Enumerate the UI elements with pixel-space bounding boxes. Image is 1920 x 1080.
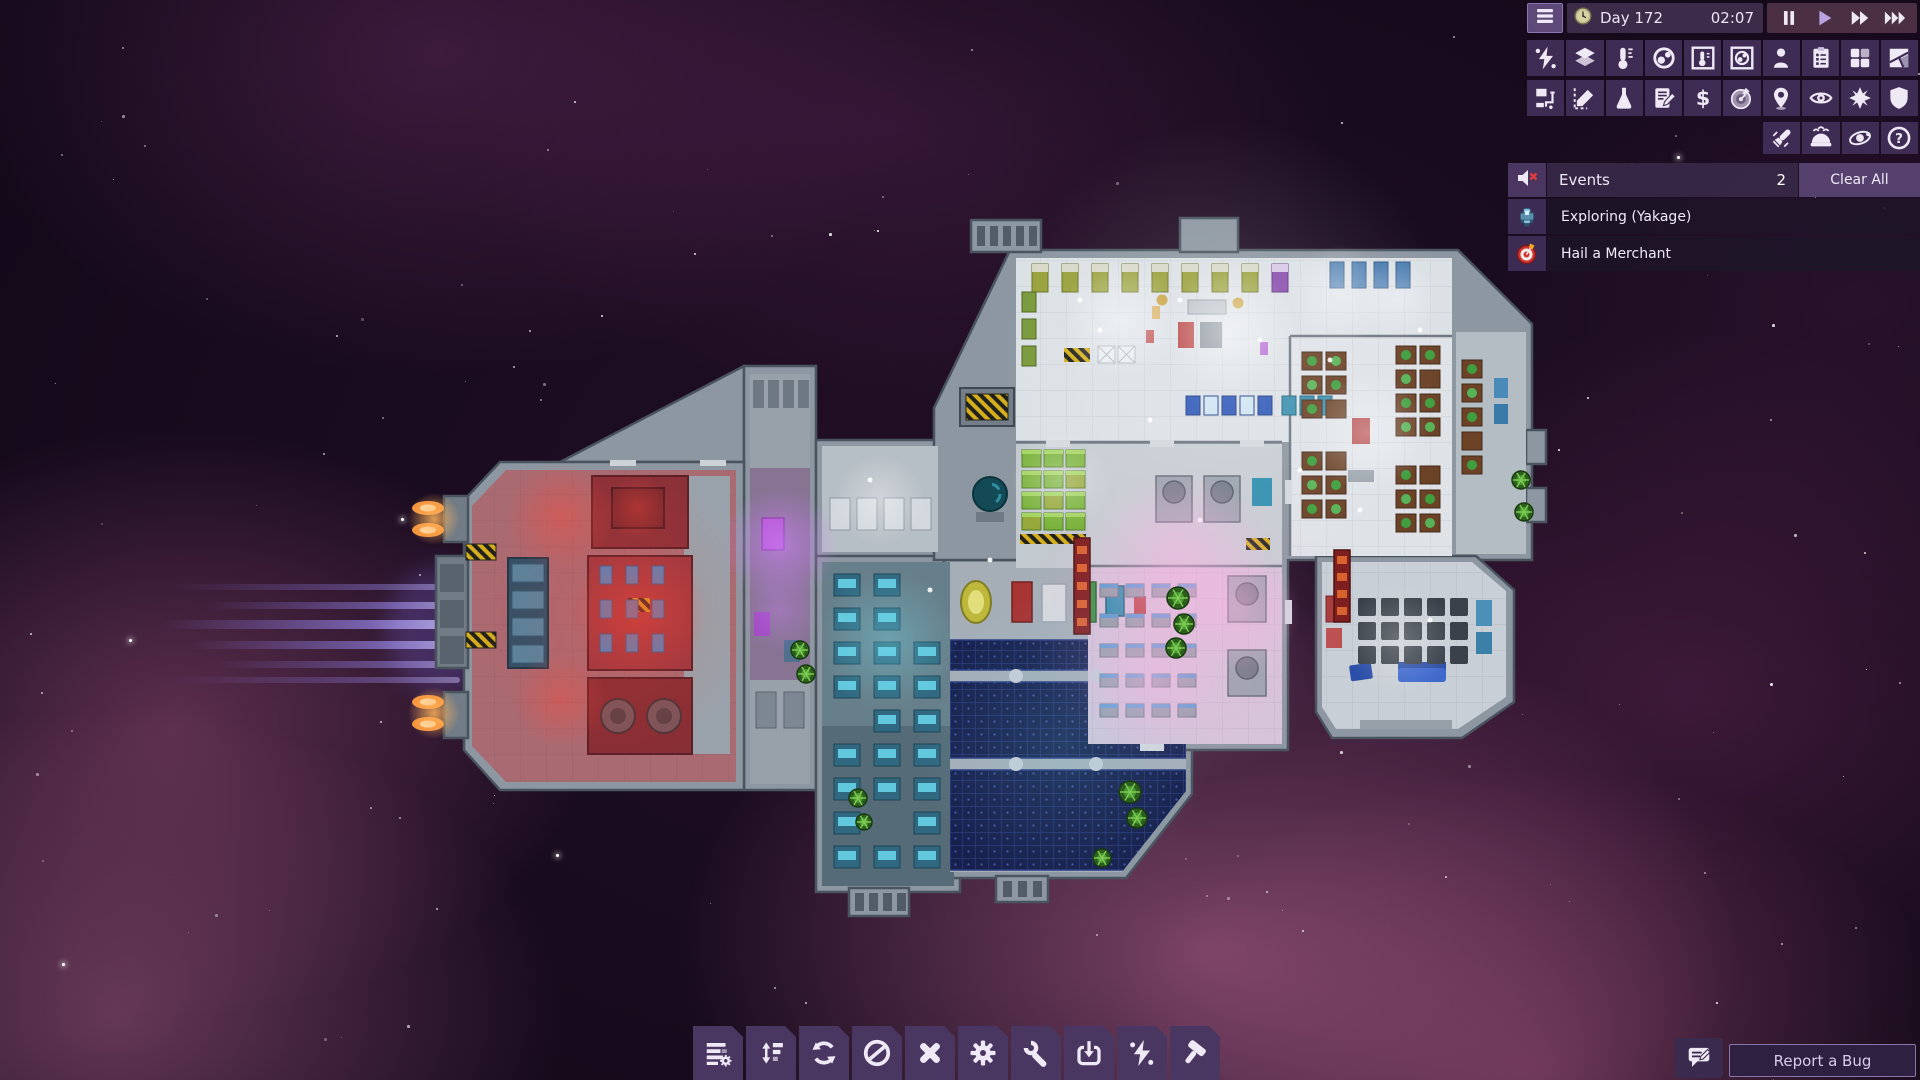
deconstruct-button[interactable] xyxy=(905,1026,955,1080)
gas-detail-overlay-button[interactable] xyxy=(1723,40,1760,76)
operations-button[interactable] xyxy=(958,1026,1008,1080)
playback-controls xyxy=(1767,3,1917,33)
facilities-overlay-button[interactable] xyxy=(1841,40,1878,76)
shield-icon xyxy=(1886,85,1912,111)
zones-icon xyxy=(1572,85,1598,111)
manage-icon xyxy=(703,1038,733,1068)
floors-overlay-button[interactable] xyxy=(1566,40,1603,76)
log-icon xyxy=(1651,85,1677,111)
fff-icon xyxy=(1884,7,1906,29)
crew-overlay-button[interactable] xyxy=(1763,40,1800,76)
log-overlay-button[interactable] xyxy=(1645,80,1682,116)
build-toolbar xyxy=(693,1026,1220,1080)
hull-icon xyxy=(1886,45,1912,71)
clock-icon xyxy=(1573,6,1593,30)
deploy-icon xyxy=(1074,1038,1104,1068)
gas-overlay-button[interactable] xyxy=(1645,40,1682,76)
rotate-icon xyxy=(809,1038,839,1068)
system-view-button[interactable] xyxy=(1842,122,1879,154)
hibernation-button[interactable] xyxy=(1802,122,1839,154)
feedback-icon xyxy=(1686,1043,1712,1073)
help-button[interactable]: ? xyxy=(1881,122,1918,154)
pause-button[interactable] xyxy=(1778,7,1800,29)
power-icon xyxy=(1533,45,1559,71)
trade-icon: $ xyxy=(1690,85,1716,111)
manage-menu-button[interactable] xyxy=(693,1026,743,1080)
deploy-button[interactable] xyxy=(1064,1026,1114,1080)
orbit-icon xyxy=(1847,125,1873,151)
temp-frame-icon xyxy=(1690,45,1716,71)
fastest-forward-button[interactable] xyxy=(1884,7,1906,29)
forbid-icon xyxy=(862,1038,892,1068)
trade-overlay-button[interactable]: $ xyxy=(1684,80,1721,116)
menu-icon xyxy=(1533,4,1557,32)
fast-forward-button[interactable] xyxy=(1849,7,1871,29)
logistics-overlay-button[interactable] xyxy=(1527,80,1564,116)
visibility-icon xyxy=(1808,85,1834,111)
rotate-button[interactable] xyxy=(799,1026,849,1080)
tasks-overlay-button[interactable] xyxy=(1802,40,1839,76)
ff-icon xyxy=(1849,7,1871,29)
mute-events-button[interactable] xyxy=(1508,163,1546,197)
pod-launch-button[interactable] xyxy=(1763,122,1800,154)
pause-icon xyxy=(1778,7,1800,29)
overlay-toolbar-row1 xyxy=(1527,40,1918,76)
repair-icon xyxy=(1021,1038,1051,1068)
event-label: Exploring (Yakage) xyxy=(1547,199,1920,234)
deconstruct-icon xyxy=(915,1038,945,1068)
combat-overlay-button[interactable] xyxy=(1841,80,1878,116)
zones-overlay-button[interactable] xyxy=(1566,80,1603,116)
events-panel: Events 2 Clear All Exploring (Yakage)Hai… xyxy=(1508,163,1920,273)
forbid-button[interactable] xyxy=(852,1026,902,1080)
shields-overlay-button[interactable] xyxy=(1881,80,1918,116)
gear-icon xyxy=(968,1038,998,1068)
research-overlay-button[interactable] xyxy=(1606,80,1643,116)
dome-icon xyxy=(1808,125,1834,151)
time-of-day: 02:07 xyxy=(1711,9,1754,27)
temperature-detail-overlay-button[interactable] xyxy=(1684,40,1721,76)
navigation-icon xyxy=(1768,85,1794,111)
event-ship-icon xyxy=(1508,199,1546,234)
crew-icon xyxy=(1768,45,1794,71)
events-count: 2 xyxy=(1776,171,1786,189)
visibility-overlay-button[interactable] xyxy=(1802,80,1839,116)
power-overlay-button[interactable] xyxy=(1527,40,1564,76)
event-row[interactable]: Hail a Merchant xyxy=(1508,236,1920,271)
rooms-icon xyxy=(1847,45,1873,71)
gas-frame-icon xyxy=(1729,45,1755,71)
event-label: Hail a Merchant xyxy=(1547,236,1920,271)
ship-map[interactable] xyxy=(0,0,1920,1080)
svg-text:?: ? xyxy=(1895,131,1903,147)
build-button[interactable] xyxy=(1170,1026,1220,1080)
power-icon xyxy=(1127,1038,1157,1068)
gas-icon xyxy=(1651,45,1677,71)
logistics-icon xyxy=(1533,85,1559,111)
temperature-overlay-button[interactable] xyxy=(1606,40,1643,76)
priorities-button[interactable] xyxy=(746,1026,796,1080)
events-title: Events xyxy=(1559,171,1610,189)
floors-icon xyxy=(1572,45,1598,71)
events-header: Events 2 xyxy=(1547,163,1798,197)
clock-bar[interactable]: Day 172 02:07 xyxy=(1567,3,1763,33)
overlay-toolbar-row2: $ xyxy=(1527,80,1918,116)
missions-icon xyxy=(1729,85,1755,111)
navigation-overlay-button[interactable] xyxy=(1763,80,1800,116)
research-icon xyxy=(1611,85,1637,111)
event-target-icon xyxy=(1508,236,1546,271)
play-icon xyxy=(1813,7,1835,29)
event-row[interactable]: Exploring (Yakage) xyxy=(1508,199,1920,234)
repair-button[interactable] xyxy=(1011,1026,1061,1080)
feedback-bubble-button[interactable] xyxy=(1675,1038,1723,1078)
main-menu-button[interactable] xyxy=(1527,3,1563,33)
help-icon: ? xyxy=(1886,125,1912,151)
pod-icon xyxy=(1769,125,1795,151)
temperature-icon xyxy=(1611,45,1637,71)
muted-speaker-icon xyxy=(1515,166,1539,194)
clear-all-events-button[interactable]: Clear All xyxy=(1799,163,1920,197)
combat-icon xyxy=(1847,85,1873,111)
priorities-icon xyxy=(756,1038,786,1068)
report-bug-button[interactable]: Report a Bug xyxy=(1729,1044,1916,1077)
missions-overlay-button[interactable] xyxy=(1723,80,1760,116)
play-button[interactable] xyxy=(1813,7,1835,29)
tasks-icon xyxy=(1808,45,1834,71)
build-icon xyxy=(1180,1038,1210,1068)
hull-overlay-button[interactable] xyxy=(1881,40,1918,76)
day-counter: Day 172 xyxy=(1600,9,1663,27)
svg-text:$: $ xyxy=(1696,86,1710,110)
power-toggle-button[interactable] xyxy=(1117,1026,1167,1080)
overlay-toolbar-row3: ? xyxy=(1763,122,1918,154)
